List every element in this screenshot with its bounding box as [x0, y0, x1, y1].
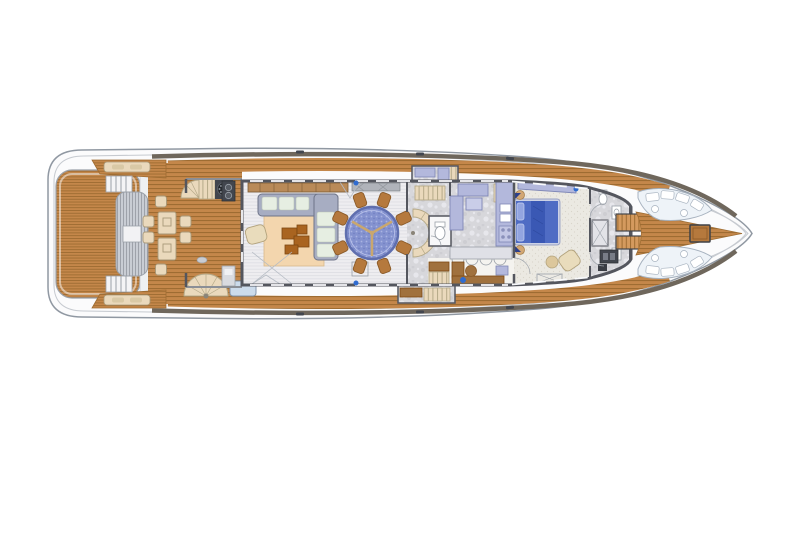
prep-block — [466, 198, 482, 210]
pillow — [517, 203, 524, 220]
side-cabinet — [438, 168, 449, 180]
deck-fitting — [197, 257, 207, 263]
deck-light — [354, 281, 359, 286]
stair-treads — [199, 179, 215, 199]
deck-chair — [180, 232, 191, 243]
cleat-icon — [416, 311, 424, 314]
deck-chair — [180, 216, 191, 227]
office-cabinet — [429, 262, 449, 271]
cleat-icon — [296, 151, 304, 154]
office-cabinet — [496, 266, 508, 275]
deck-chair — [156, 264, 167, 275]
side-entry-starboard — [398, 285, 455, 303]
deck-chair — [143, 216, 154, 227]
windlass-gear-icon — [600, 250, 618, 263]
deck-table — [158, 212, 176, 234]
yacht-deck-plan — [0, 0, 800, 533]
office-chair — [466, 266, 477, 277]
gear-detail — [603, 253, 608, 260]
side-cabinet — [400, 288, 422, 297]
stairs-down — [424, 288, 450, 301]
day-head — [429, 216, 451, 246]
side-cabinet — [415, 168, 435, 177]
bar-sink — [225, 269, 233, 275]
table-hub — [370, 231, 374, 235]
side-bench — [104, 295, 150, 305]
stair-post — [411, 231, 415, 235]
transom-hatch — [123, 226, 141, 242]
appliance-bank — [450, 247, 512, 259]
deck-chair — [156, 196, 167, 207]
crew-stairs-down — [429, 272, 449, 284]
spiral-post — [204, 294, 209, 299]
grill-burner — [225, 192, 231, 198]
staircase-up — [415, 186, 445, 200]
steps-icon — [106, 176, 132, 192]
gear-detail — [610, 253, 615, 260]
cleat-icon — [296, 313, 304, 316]
toilet-icon — [599, 194, 607, 205]
galley-island — [458, 184, 488, 196]
steps-icon — [106, 276, 132, 292]
grill-burner — [225, 184, 231, 190]
sink-basin — [500, 204, 511, 212]
bench-cushion — [112, 165, 124, 170]
fridge-column — [450, 196, 463, 230]
deck-light — [354, 181, 359, 186]
bench-cushion — [130, 298, 142, 303]
sink-basin — [500, 214, 511, 222]
stove-icon — [499, 226, 512, 242]
ottoman — [546, 256, 558, 268]
side-bench — [104, 162, 150, 172]
deck-table — [158, 238, 176, 260]
bench-cushion — [112, 298, 124, 303]
bench-cushion — [130, 165, 142, 170]
stool — [460, 277, 466, 283]
cleat-icon — [416, 153, 424, 156]
pillow — [517, 224, 524, 241]
deck-chair — [143, 232, 154, 243]
bed-runner — [531, 201, 545, 243]
side-steps — [450, 167, 457, 181]
office-desk — [452, 276, 504, 284]
yacht-deck-plan-page — [0, 0, 800, 533]
sideboard — [248, 183, 348, 192]
